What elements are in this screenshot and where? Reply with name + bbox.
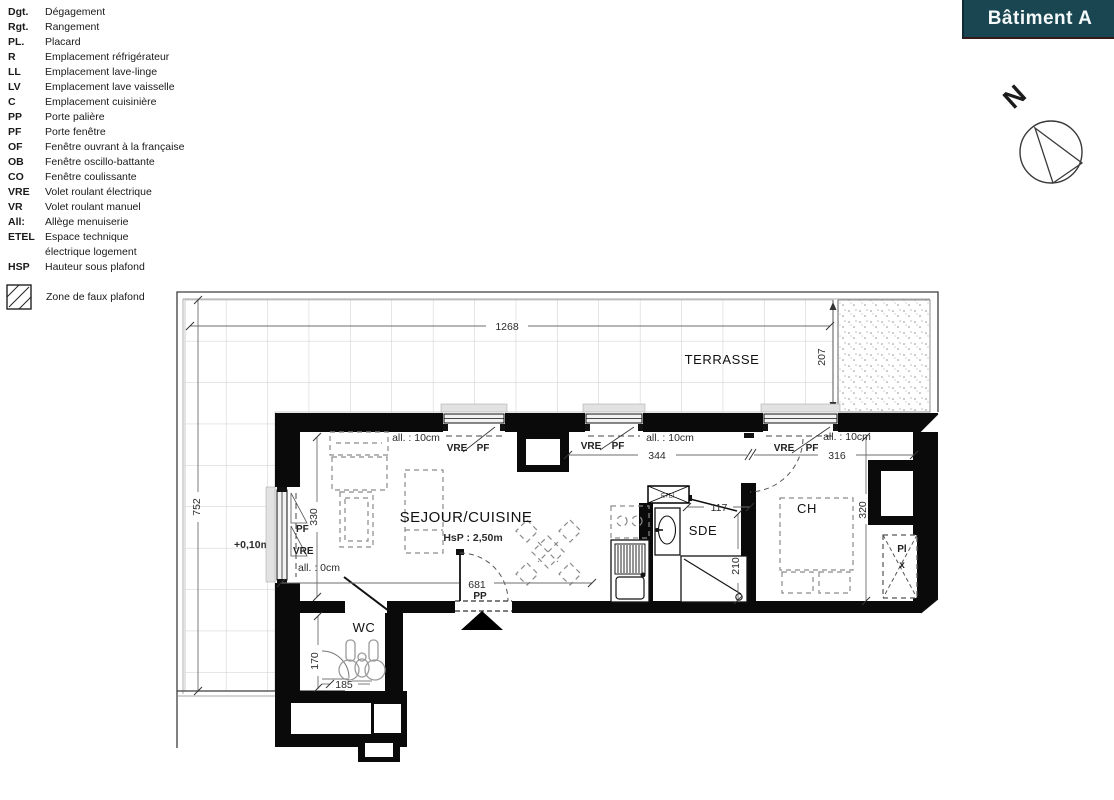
level-label: +0,10m [234,539,270,551]
wc-room: WC [339,620,385,681]
dim-wc-width: 185 [335,679,353,691]
window3-pf-label: PF [806,443,819,454]
window1-allege: all. : 10cm [392,432,440,444]
room-wc: WC [353,620,376,635]
dim-left-bay: 330 [308,508,320,526]
placard: Pl x [883,535,917,598]
north-compass: N [997,79,1082,183]
north-label: N [997,79,1032,114]
entry-pp-label: PP [473,591,487,602]
etel-label: ETEL [661,494,677,500]
floorplan-page: Dgt.Dégagement Rgt.Rangement PL.Placard … [0,0,1114,800]
sde-room: ETEL SDE [648,486,747,602]
window3-allege: all. : 10cm [823,431,871,443]
dining-set [516,520,581,585]
room-sde: SDE [689,523,718,538]
room-terrasse: TERRASSE [685,352,760,367]
dim-sejour-width: 681 [468,579,486,591]
dim-wc-depth: 170 [309,652,321,670]
sejour-kitchen: SEJOUR/CUISINE HsP : 2,50m [330,432,649,602]
walls [275,411,938,762]
window3-vre-label: VRE [774,443,795,454]
dim-sde-width: 117 [711,502,728,514]
dim-total-width: 1268 [495,321,519,333]
floorplan-drawing: N 1268 752 [0,0,1114,800]
dim-win-left: 344 [648,450,666,462]
window2-pf-label: PF [612,441,625,452]
dim-terrace-height: 752 [191,498,203,516]
room-ch: CH [797,501,817,516]
sejour-hsp: HsP : 2,50m [443,532,502,544]
dimensions: 344 316 330 681 117 210 [277,433,918,692]
counter-2 [332,457,387,490]
left-window-allege: all. : 0cm [298,562,340,574]
window1-pf-label: PF [477,443,490,454]
window2-allege: all. : 10cm [646,432,694,444]
window1-vre-label: VRE [447,443,468,454]
dim-sde-depth: 210 [730,557,742,575]
left-window-pf-label: PF [296,524,309,535]
wheelchair-icon [339,640,385,681]
compass-needle [1035,128,1082,183]
dim-win-right: 316 [828,450,846,462]
compass-circle [1020,121,1082,183]
dim-terrace-depth: 207 [816,348,828,366]
gravel-zone [838,300,930,412]
room-sejour: SEJOUR/CUISINE [400,509,533,526]
left-window-vre-label: VRE [293,546,314,557]
placard-label: Pl [897,544,907,555]
window-left: PF VRE all. : 0cm [266,487,340,584]
window2-vre-label: VRE [581,441,602,452]
placard-x: x [899,560,905,571]
dim-ch-depth: 320 [857,501,869,519]
